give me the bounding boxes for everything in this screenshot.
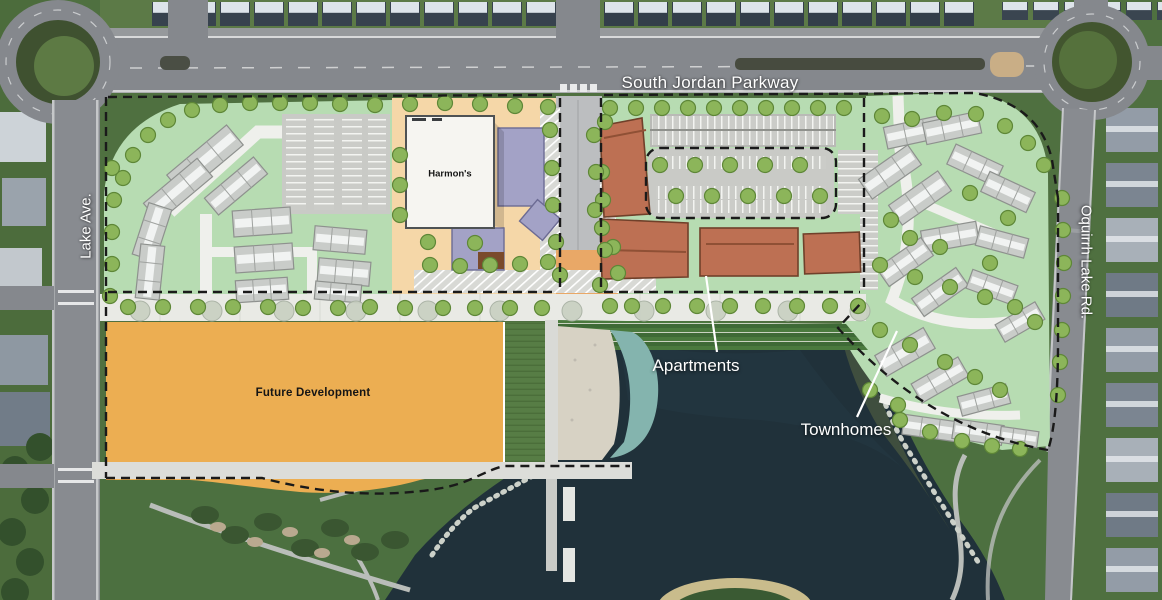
tree (393, 178, 408, 193)
house (910, 2, 940, 26)
tree (793, 158, 808, 173)
tree (598, 115, 613, 130)
tree (438, 96, 453, 111)
site-plan-screenshot: South Jordan Parkway Lake Ave. Oquirrh L… (0, 0, 1162, 600)
tree (758, 158, 773, 173)
tree (393, 208, 408, 223)
tree (16, 548, 44, 576)
site-plan-graphic (0, 0, 1162, 600)
townhome-building (232, 207, 292, 237)
tree (141, 128, 156, 143)
tree (723, 299, 738, 314)
house (458, 2, 488, 26)
promenade-tree (562, 301, 582, 321)
house (492, 2, 522, 26)
tree (1001, 211, 1016, 226)
tree (884, 213, 899, 228)
tree (545, 161, 560, 176)
tree (403, 97, 418, 112)
grass-strip (505, 322, 545, 462)
house (1106, 548, 1158, 592)
tree (226, 300, 241, 315)
rock (282, 527, 298, 537)
bush (381, 531, 409, 549)
tree (191, 300, 206, 315)
house (876, 2, 906, 26)
tree (1021, 136, 1036, 151)
house (424, 2, 454, 26)
tree (483, 258, 498, 273)
house (220, 2, 250, 26)
house (0, 335, 48, 385)
tree (331, 301, 346, 316)
beach (556, 326, 620, 460)
rock (344, 535, 360, 545)
tree (785, 101, 800, 116)
tree (993, 383, 1008, 398)
bush (351, 543, 379, 561)
house (1126, 2, 1152, 20)
tree (513, 257, 528, 272)
tree (655, 101, 670, 116)
tree (629, 101, 644, 116)
tree (705, 189, 720, 204)
tree (985, 439, 1000, 454)
tree (938, 355, 953, 370)
townhome-building (235, 277, 288, 303)
promenade-tree (274, 301, 294, 321)
tree (741, 189, 756, 204)
tree (905, 112, 920, 127)
tree (983, 256, 998, 271)
tree (598, 243, 613, 258)
tree (1051, 388, 1066, 403)
tree (903, 231, 918, 246)
tree (363, 300, 378, 315)
tree (436, 301, 451, 316)
bush (191, 506, 219, 524)
tree (398, 301, 413, 316)
bush (321, 519, 349, 537)
tree (468, 301, 483, 316)
tree (1028, 315, 1043, 330)
tree (243, 96, 258, 111)
house (842, 2, 872, 26)
house (706, 2, 736, 26)
tree (508, 99, 523, 114)
tree (185, 103, 200, 118)
tree (103, 289, 118, 304)
tree (549, 235, 564, 250)
house (672, 2, 702, 26)
tree (333, 97, 348, 112)
tree (423, 258, 438, 273)
tree (969, 107, 984, 122)
house (322, 2, 352, 26)
tree (296, 301, 311, 316)
tree (811, 101, 826, 116)
tree (933, 240, 948, 255)
tree (790, 299, 805, 314)
house (1106, 438, 1158, 482)
house (390, 2, 420, 26)
tree (261, 300, 276, 315)
tree (813, 189, 828, 204)
tree (875, 109, 890, 124)
tree (273, 96, 288, 111)
tree (126, 148, 141, 163)
house (2, 178, 46, 226)
house (638, 2, 668, 26)
tree (955, 434, 970, 449)
tree (368, 98, 383, 113)
tree (603, 101, 618, 116)
tree (161, 113, 176, 128)
tree (903, 338, 918, 353)
promenade-tree (418, 301, 438, 321)
house (740, 2, 770, 26)
parking-lot-west (282, 114, 390, 214)
tree (653, 158, 668, 173)
house (1106, 163, 1158, 207)
house (526, 2, 556, 26)
tree (978, 290, 993, 305)
tree (968, 370, 983, 385)
tree (893, 413, 908, 428)
tree (777, 189, 792, 204)
tree (837, 101, 852, 116)
house (254, 2, 284, 26)
tree (503, 301, 518, 316)
tree (156, 300, 171, 315)
tree (823, 299, 838, 314)
tree (473, 97, 488, 112)
house (1106, 383, 1158, 427)
tree (541, 255, 556, 270)
tree (213, 98, 228, 113)
tree (107, 193, 122, 208)
house (1002, 2, 1028, 20)
tree (873, 323, 888, 338)
house (1106, 273, 1158, 317)
tree (468, 236, 483, 251)
roundabout-east (1034, 4, 1150, 120)
tree (587, 128, 602, 143)
rock (247, 537, 263, 547)
tree (733, 101, 748, 116)
rock (314, 548, 330, 558)
harmons-building (406, 116, 504, 228)
tree (453, 259, 468, 274)
house (288, 2, 318, 26)
tree (393, 148, 408, 163)
bush (254, 513, 282, 531)
house (604, 2, 634, 26)
tree (121, 300, 136, 315)
tree (26, 433, 54, 461)
house (356, 2, 386, 26)
tree (707, 101, 722, 116)
tree (543, 123, 558, 138)
townhome-building (234, 243, 294, 273)
house (1106, 493, 1158, 537)
house (944, 2, 974, 26)
tree (669, 189, 684, 204)
tree (421, 235, 436, 250)
tree (21, 486, 49, 514)
tree (603, 299, 618, 314)
tree (937, 106, 952, 121)
tree (891, 398, 906, 413)
tree (943, 280, 958, 295)
townhome-building (313, 226, 367, 254)
tree (1055, 323, 1070, 338)
tree (873, 258, 888, 273)
tree (908, 270, 923, 285)
tree (681, 101, 696, 116)
tree (759, 101, 774, 116)
tree (923, 425, 938, 440)
house (774, 2, 804, 26)
tree (1053, 355, 1068, 370)
rock (210, 522, 226, 532)
tree (546, 198, 561, 213)
tree (756, 299, 771, 314)
tree (963, 186, 978, 201)
tree (611, 266, 626, 281)
tree (1008, 300, 1023, 315)
house (1106, 328, 1158, 372)
tree (541, 100, 556, 115)
house (1157, 2, 1162, 20)
tree (998, 119, 1013, 134)
house (1106, 218, 1158, 262)
tree (690, 299, 705, 314)
tree (1037, 158, 1052, 173)
tree (723, 158, 738, 173)
tree (688, 158, 703, 173)
house (808, 2, 838, 26)
tree (303, 96, 318, 111)
tree (625, 299, 640, 314)
tree (535, 301, 550, 316)
tree (656, 299, 671, 314)
